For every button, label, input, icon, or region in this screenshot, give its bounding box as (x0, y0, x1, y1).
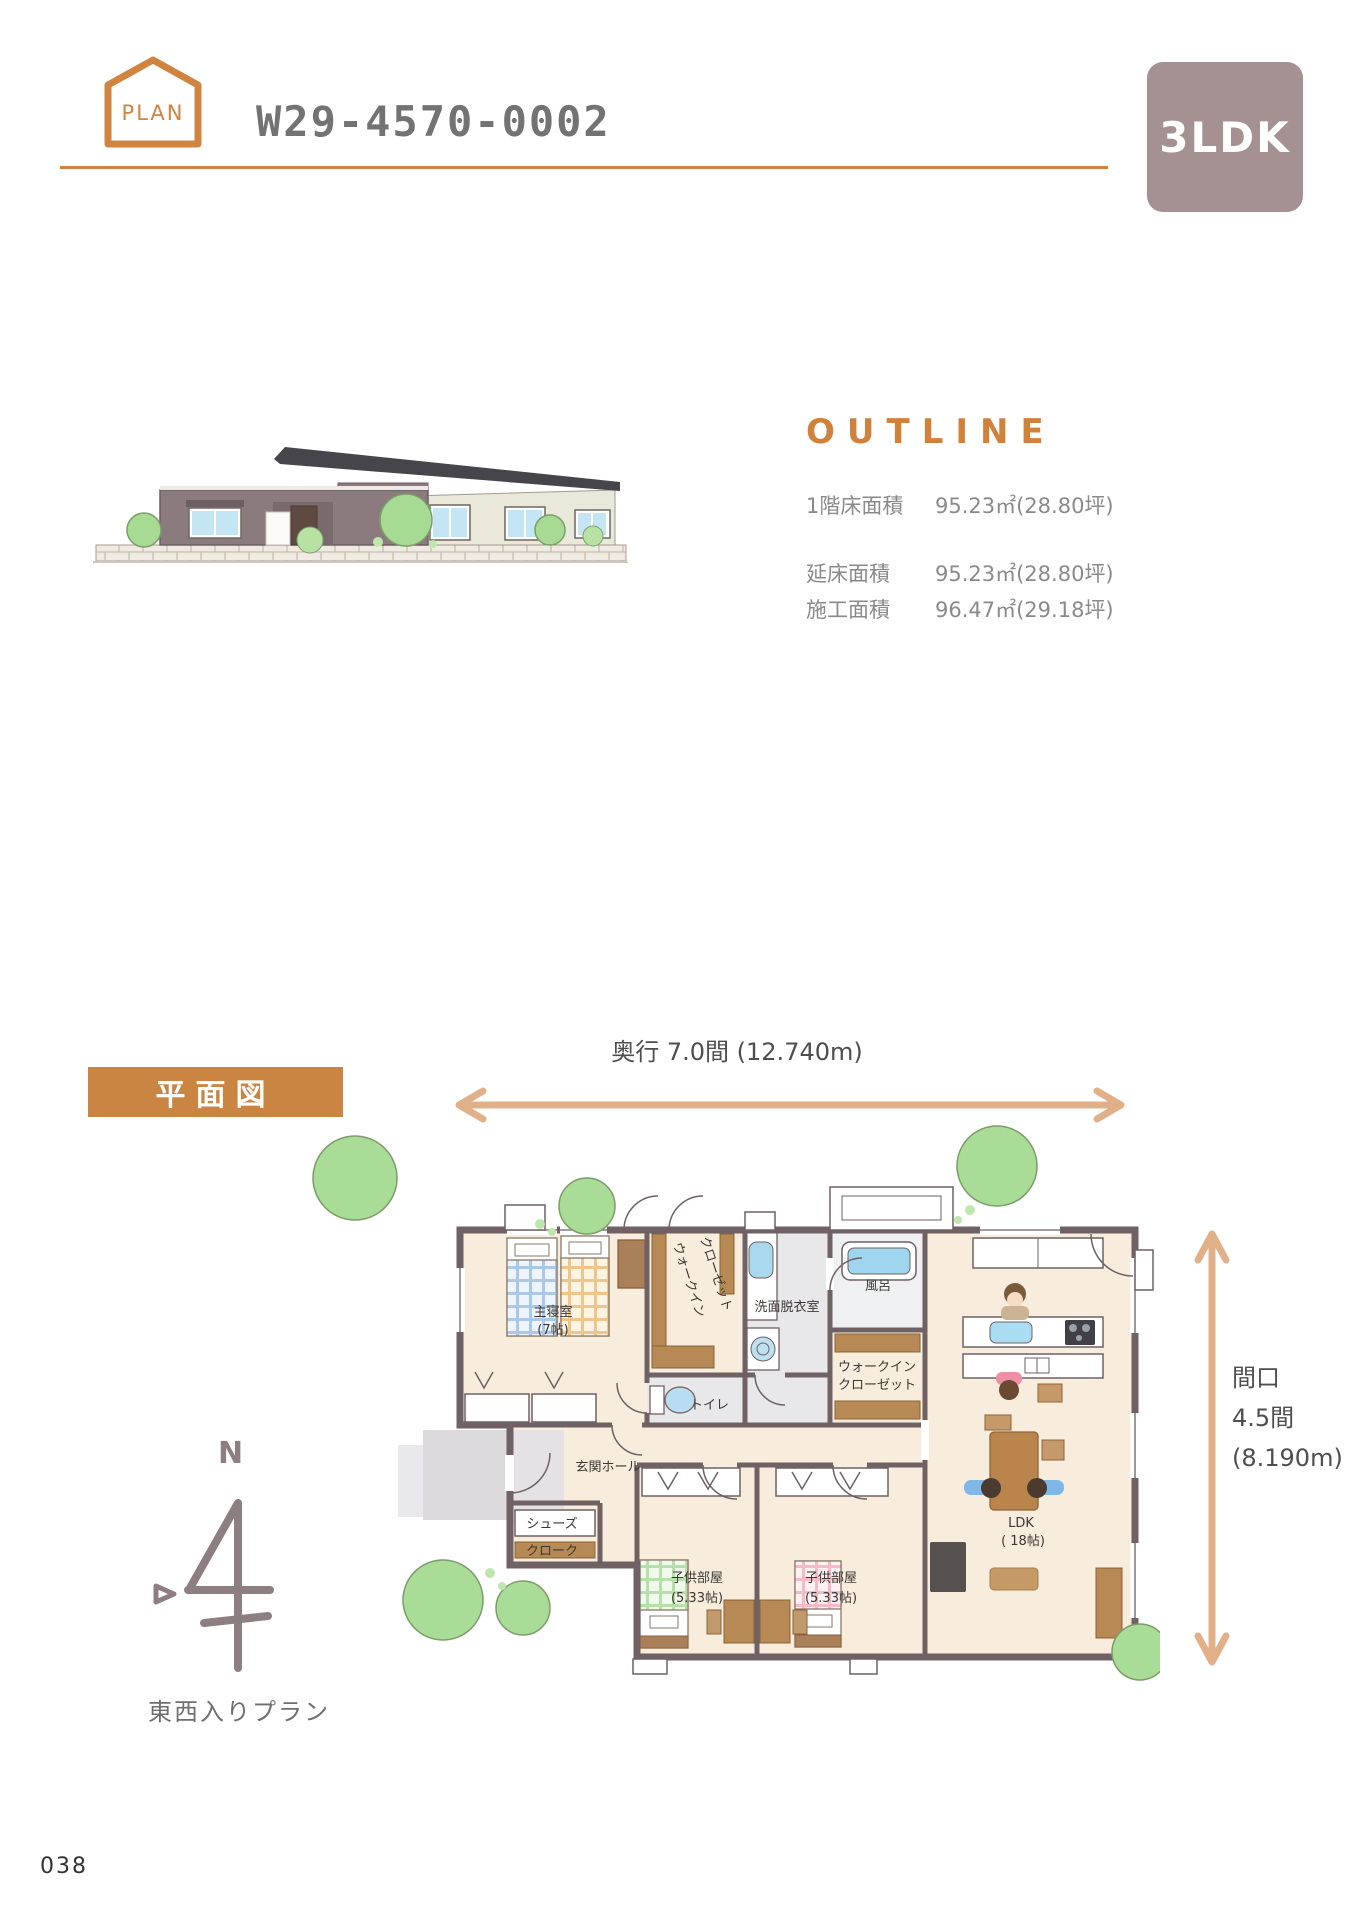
label-shoes-2: クローク (526, 1544, 578, 1559)
label-master: 主寝室 (533, 1304, 572, 1320)
width-dim-line2: 4.5間 (1232, 1398, 1343, 1438)
entry-screen-wall (266, 512, 290, 545)
depth-dimension-label: 奥行 7.0間 (12.740m) (437, 1032, 1037, 1067)
label-wic-mid-2: クローゼット (838, 1378, 916, 1393)
tv-board (930, 1542, 966, 1592)
width-dim-line3: (8.190m) (1232, 1438, 1343, 1478)
spec-row-construction: 施工面積96.47㎡(29.18坪) (806, 594, 1114, 624)
dining-table (990, 1432, 1038, 1510)
garden-wall-bricks (96, 545, 626, 561)
label-wic-mid-1: ウォークイン (838, 1360, 916, 1375)
label-toilet: トイレ (690, 1398, 729, 1413)
spec-row-total: 延床面積95.23㎡(28.80坪) (806, 558, 1114, 588)
plan-code-title: W29-4570-0002 (256, 97, 611, 146)
catalog-page: PLAN W29-4570-0002 3LDK (0, 0, 1358, 1920)
type-badge: 3LDK (1147, 62, 1303, 212)
width-dim-line1: 間口 (1232, 1358, 1343, 1398)
label-ldk: LDK (1008, 1516, 1034, 1531)
kitchen (963, 1238, 1103, 1402)
porch-step (398, 1445, 423, 1517)
house-illustration (88, 352, 633, 567)
label-kids2: 子供部屋 (805, 1571, 857, 1586)
bathtub (842, 1242, 916, 1280)
floorplan-section-label: 平面図 (88, 1067, 343, 1117)
spec-value: 95.23㎡(28.80坪) (935, 562, 1114, 586)
roof-trim (160, 486, 428, 490)
spec-label: 1階床面積 (806, 490, 935, 520)
label-shoes-1: シューズ (526, 1516, 577, 1532)
page-number: 038 (40, 1854, 88, 1879)
compass-north-label: N (218, 1436, 243, 1471)
label-washroom: 洗面脱衣室 (754, 1299, 819, 1315)
label-kids2-size: (5.33帖) (805, 1591, 857, 1606)
plan-badge-label: PLAN (122, 101, 185, 125)
label-kids1: 子供部屋 (671, 1571, 723, 1586)
kitchen-sink (990, 1322, 1032, 1343)
spec-value: 95.23㎡(28.80坪) (935, 494, 1114, 518)
ldk-cabinet (1096, 1568, 1122, 1638)
entry-direction-note: 東西入りプラン (148, 1692, 330, 1727)
label-master-size: (7帖) (537, 1323, 568, 1338)
stove (1065, 1320, 1095, 1345)
compass-pointer-icon (156, 1586, 174, 1602)
compass-arrow-icon (140, 1468, 280, 1678)
left-window (186, 500, 244, 538)
porch (423, 1430, 510, 1520)
spec-value: 96.47㎡(29.18坪) (935, 598, 1114, 622)
width-dimension-label: 間口 4.5間 (8.190m) (1232, 1358, 1343, 1478)
label-ldk-size: ( 18帖) (1001, 1534, 1045, 1549)
outline-heading: OUTLINE (806, 412, 1056, 452)
width-dimension-arrow (1192, 1222, 1232, 1672)
master-cabinet (618, 1240, 647, 1288)
label-kids1-size: (5.33帖) (671, 1591, 723, 1606)
label-hall: 玄関ホール (575, 1460, 640, 1475)
spec-row-floor1: 1階床面積95.23㎡(28.80坪) (806, 490, 1114, 520)
label-bath: 風呂 (865, 1279, 891, 1294)
spec-label: 延床面積 (806, 558, 935, 588)
spec-label: 施工面積 (806, 594, 935, 624)
toilet-fixture (650, 1386, 695, 1414)
shed-roof (274, 447, 620, 491)
rug (990, 1568, 1038, 1590)
header-rule (60, 166, 1108, 169)
plan-house-badge: PLAN (100, 52, 206, 152)
floorplan-drawing: 主寝室 (7帖) ウォークイン クローゼット 洗面脱衣室 風呂 トイレ ウォーク… (290, 1118, 1160, 1703)
